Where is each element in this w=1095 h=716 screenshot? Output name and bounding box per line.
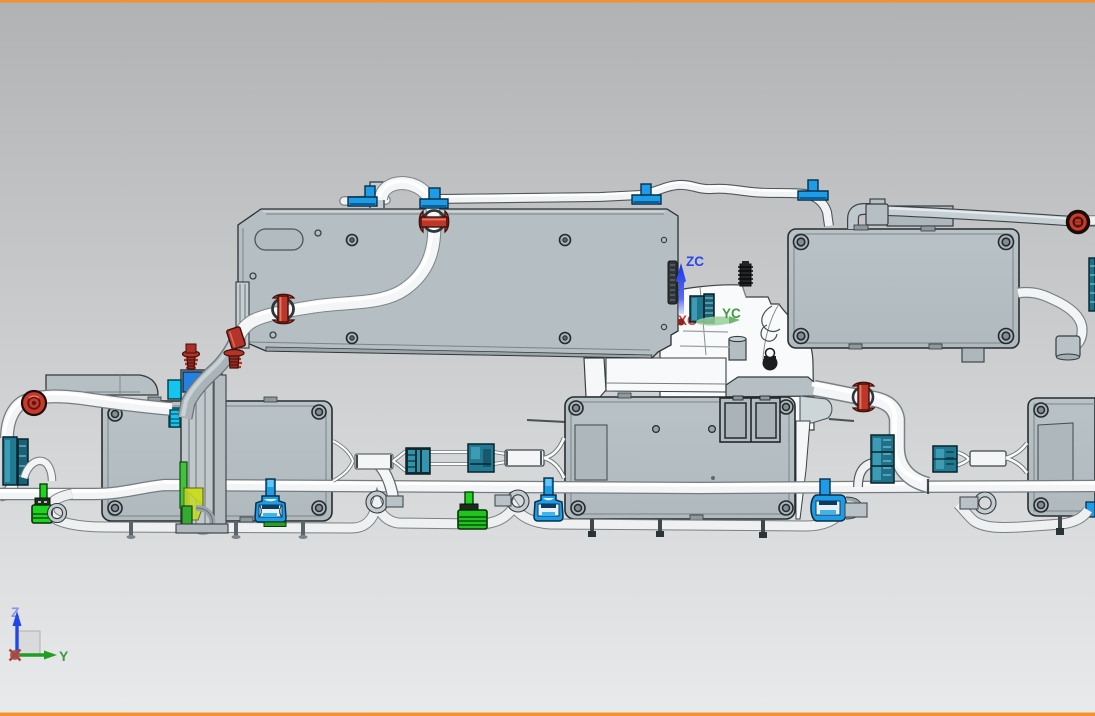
- svg-text:ZC: ZC: [686, 254, 704, 269]
- svg-text:YC: YC: [722, 306, 741, 321]
- svg-text:Y: Y: [59, 648, 69, 664]
